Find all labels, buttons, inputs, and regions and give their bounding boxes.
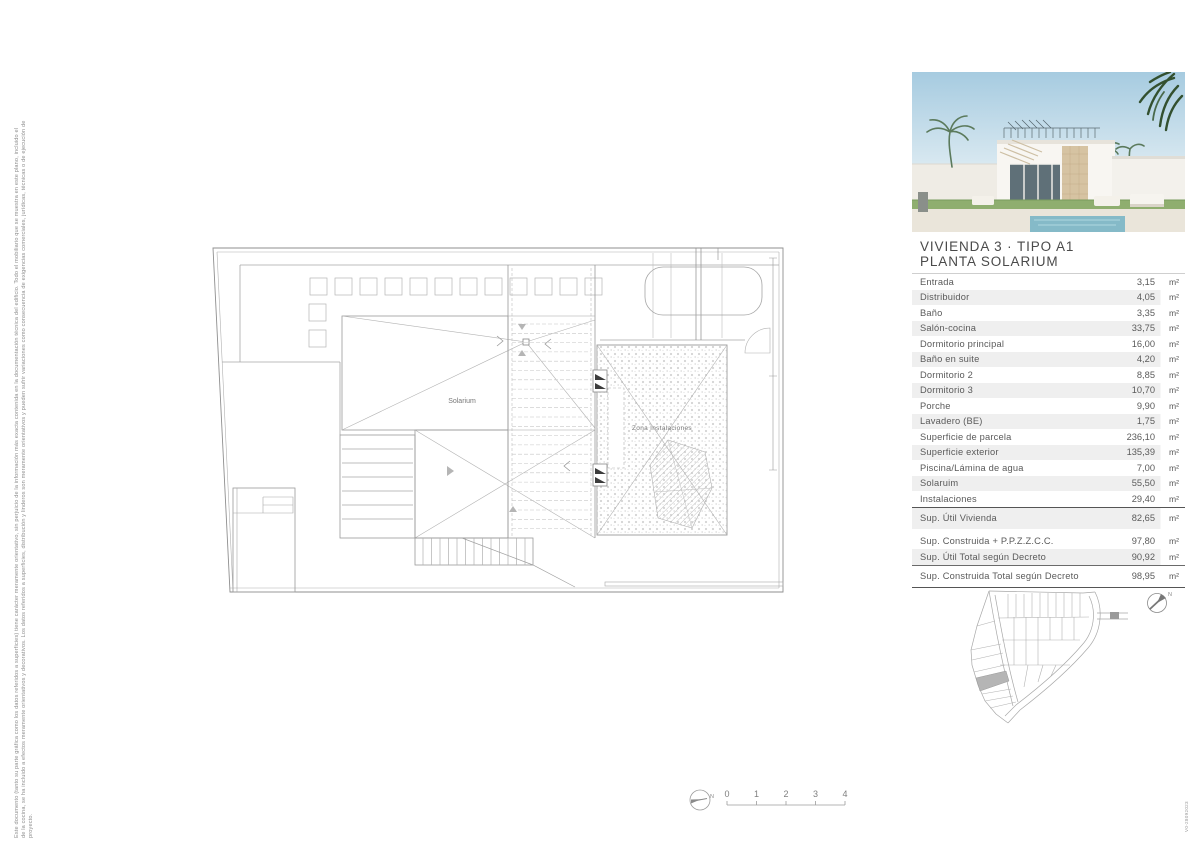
disclaimer-line: de la cocina, se ha incluido a efectos m… (21, 12, 28, 838)
site-access-path (989, 591, 1018, 706)
pergola-posts (309, 278, 602, 347)
table-row: Baño en suite 4,20 m² (912, 352, 1185, 368)
room-value: 135,39 (1111, 447, 1155, 457)
villa-render-image (912, 72, 1185, 232)
room-unit: m² (1155, 339, 1185, 349)
room-label: Lavadero (BE) (912, 416, 1111, 426)
room-label: Piscina/Lámina de agua (912, 463, 1111, 473)
room-value: 7,00 (1111, 463, 1155, 473)
summary-value: 97,80 (1111, 536, 1155, 546)
table-row: Lavadero (BE) 1,75 m² (912, 414, 1185, 430)
scale-ruler: 0 1 2 3 4 (724, 789, 847, 805)
table-row: Salón-cocina 33,75 m² (912, 321, 1185, 337)
site-north-compass-icon: N (1148, 592, 1173, 613)
room-value: 33,75 (1111, 323, 1155, 333)
site-parcels (971, 593, 1089, 708)
room-rows: Entrada 3,15 m² Distribuidor 4,05 m² Bañ… (912, 274, 1185, 507)
summary-label: Sup. Construida Total según Decreto (912, 571, 1111, 581)
north-compass-icon: N (690, 790, 714, 810)
room-value: 55,50 (1111, 478, 1155, 488)
room-unit: m² (1155, 308, 1185, 318)
title-line-1: VIVIENDA 3 · TIPO A1 (920, 239, 1185, 254)
scale-bar: N 0 1 2 3 4 (680, 782, 860, 822)
table-row: Superficie exterior 135,39 m² (912, 445, 1185, 461)
summary-value: 82,65 (1111, 513, 1155, 523)
room-value: 1,75 (1111, 416, 1155, 426)
table-row: Solaruim 55,50 m² (912, 476, 1185, 492)
storage-structure (233, 488, 295, 592)
bottom-stairs (415, 538, 575, 587)
summary-unit: m² (1155, 571, 1185, 581)
stair-markers (447, 324, 526, 512)
table-row-summary: Sup. Construida Total según Decreto 98,9… (912, 566, 1185, 587)
dimension-line (769, 258, 777, 470)
road-marker (1110, 612, 1119, 619)
table-row: Piscina/Lámina de agua 7,00 m² (912, 460, 1185, 476)
room-unit: m² (1155, 447, 1185, 457)
room-label: Dormitorio 2 (912, 370, 1111, 380)
floor-plan-svg: Solarium (200, 240, 800, 610)
summary-unit: m² (1155, 513, 1185, 523)
room-value: 236,10 (1111, 432, 1155, 442)
room-unit: m² (1155, 370, 1185, 380)
room-label: Instalaciones (912, 494, 1111, 504)
table-row: Entrada 3,15 m² (912, 274, 1185, 290)
pool (1030, 216, 1125, 232)
room-unit: m² (1155, 354, 1185, 364)
room-label: Porche (912, 401, 1111, 411)
room-unit: m² (1155, 463, 1185, 473)
table-row: Dormitorio 2 8,85 m² (912, 367, 1185, 383)
floor-plan-drawing: Solarium (200, 240, 800, 610)
room-label: Dormitorio 3 (912, 385, 1111, 395)
room-value: 9,90 (1111, 401, 1155, 411)
room-unit: m² (1155, 432, 1185, 442)
left-stairs (340, 435, 415, 538)
table-row: Superficie de parcela 236,10 m² (912, 429, 1185, 445)
room-label: Salón-cocina (912, 323, 1111, 333)
room-unit: m² (1155, 385, 1185, 395)
site-boundary (971, 591, 1095, 723)
room-value: 3,15 (1111, 277, 1155, 287)
solarium-label: Solarium (448, 398, 476, 405)
room-unit: m² (1155, 323, 1185, 333)
summary-unit: m² (1155, 536, 1185, 546)
summary-label: Sup. Útil Total según Decreto (912, 552, 1111, 562)
zona-instalaciones (593, 345, 727, 535)
room-label: Superficie exterior (912, 447, 1111, 457)
scale-tick-label: 4 (842, 789, 847, 799)
room-label: Distribuidor (912, 292, 1111, 302)
scale-tick-label: 1 (754, 789, 759, 799)
table-row: Distribuidor 4,05 m² (912, 290, 1185, 306)
svg-text:N: N (710, 794, 714, 800)
room-value: 8,85 (1111, 370, 1155, 380)
svg-text:N: N (1168, 592, 1172, 598)
disclaimer-line: Este documento (tanto su parte gráfica c… (14, 12, 21, 838)
plan-version-code: V0-28092023 (1184, 801, 1189, 832)
room-unit: m² (1155, 277, 1185, 287)
scale-tick-label: 2 (783, 789, 788, 799)
site-map-svg: N (958, 588, 1188, 763)
room-unit: m² (1155, 292, 1185, 302)
info-panel: VIVIENDA 3 · TIPO A1 PLANTA SOLARIUM Ent… (912, 72, 1185, 588)
table-row: Dormitorio 3 10,70 m² (912, 383, 1185, 399)
summary-label: Sup. Construida + P.P.Z.Z.C.C. (912, 536, 1111, 546)
room-label: Dormitorio principal (912, 339, 1111, 349)
room-unit: m² (1155, 478, 1185, 488)
table-row: Baño 3,35 m² (912, 305, 1185, 321)
legal-disclaimer: Este documento (tanto su parte gráfica c… (14, 12, 35, 838)
room-label: Superficie de parcela (912, 432, 1111, 442)
scale-bar-svg: N 0 1 2 3 4 (680, 782, 860, 822)
zona-instalaciones-label: Zona Instalaciones (632, 425, 692, 432)
table-row-summary: Sup. Útil Vivienda 82,65 m² (912, 508, 1185, 529)
room-value: 4,05 (1111, 292, 1155, 302)
title-line-2: PLANTA SOLARIUM (920, 254, 1185, 269)
room-value: 16,00 (1111, 339, 1155, 349)
disclaimer-line: proyecto. (28, 12, 35, 838)
summary-unit: m² (1155, 552, 1185, 562)
table-row-summary: Sup. Útil Total según Decreto 90,92 m² (912, 549, 1185, 565)
scale-tick-label: 3 (813, 789, 818, 799)
table-row: Instalaciones 29,40 m² (912, 491, 1185, 507)
table-row: Porche 9,90 m² (912, 398, 1185, 414)
room-value: 4,20 (1111, 354, 1155, 364)
room-label: Solaruim (912, 478, 1111, 488)
plan-sheet: { "sheet": { "disclaimer_line1": "Este d… (0, 0, 1200, 848)
room-value: 29,40 (1111, 494, 1155, 504)
sheet-title: VIVIENDA 3 · TIPO A1 PLANTA SOLARIUM (912, 239, 1185, 269)
table-row-summary: Sup. Construida + P.P.Z.Z.C.C. 97,80 m² (912, 534, 1185, 550)
room-label: Baño (912, 308, 1111, 318)
site-road (1005, 592, 1128, 723)
upper-right-features (645, 248, 770, 353)
room-label: Baño en suite (912, 354, 1111, 364)
room-value: 3,35 (1111, 308, 1155, 318)
highlighted-parcel (976, 671, 1009, 691)
summary-label: Sup. Útil Vivienda (912, 513, 1111, 523)
room-value: 10,70 (1111, 385, 1155, 395)
table-row: Dormitorio principal 16,00 m² (912, 336, 1185, 352)
summary-value: 90,92 (1111, 552, 1155, 562)
room-label: Entrada (912, 277, 1111, 287)
room-unit: m² (1155, 494, 1185, 504)
summary-value: 98,95 (1111, 571, 1155, 581)
room-unit: m² (1155, 401, 1185, 411)
room-unit: m² (1155, 416, 1185, 426)
areas-table: Entrada 3,15 m² Distribuidor 4,05 m² Bañ… (912, 273, 1185, 588)
scale-tick-label: 0 (724, 789, 729, 799)
site-location-map: N (958, 588, 1188, 763)
